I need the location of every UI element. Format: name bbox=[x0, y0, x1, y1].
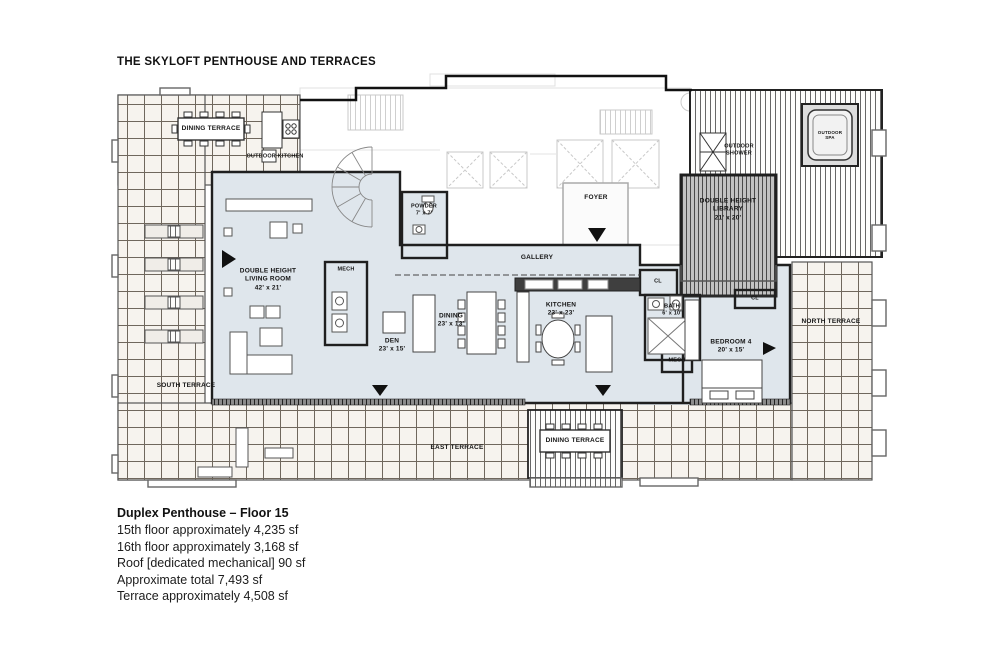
page: { "page": { "title": "THE SKYLOFT PENTHO… bbox=[0, 0, 990, 655]
floor-plan-graphic bbox=[110, 70, 890, 490]
summary-line-4: Approximate total 7,493 sf bbox=[117, 572, 447, 589]
area-summary: Duplex Penthouse – Floor 15 15th floor a… bbox=[117, 506, 447, 605]
outdoor-shower-glyph bbox=[700, 133, 726, 171]
summary-heading: Duplex Penthouse – Floor 15 bbox=[117, 506, 447, 520]
summary-line-1: 15th floor approximately 4,235 sf bbox=[117, 522, 447, 539]
page-title: THE SKYLOFT PENTHOUSE AND TERRACES bbox=[117, 56, 376, 68]
summary-line-5: Terrace approximately 4,508 sf bbox=[117, 588, 447, 605]
floor-plan: DINING TERRACE OUTDOOR KITCHEN SOUTH TER… bbox=[110, 70, 890, 490]
dining-terrace-bottom-deck bbox=[528, 410, 622, 478]
summary-line-3: Roof [dedicated mechanical] 90 sf bbox=[117, 555, 447, 572]
outdoor-spa-glyph bbox=[802, 104, 858, 166]
summary-line-2: 16th floor approximately 3,168 sf bbox=[117, 539, 447, 556]
library-floor bbox=[681, 175, 776, 296]
